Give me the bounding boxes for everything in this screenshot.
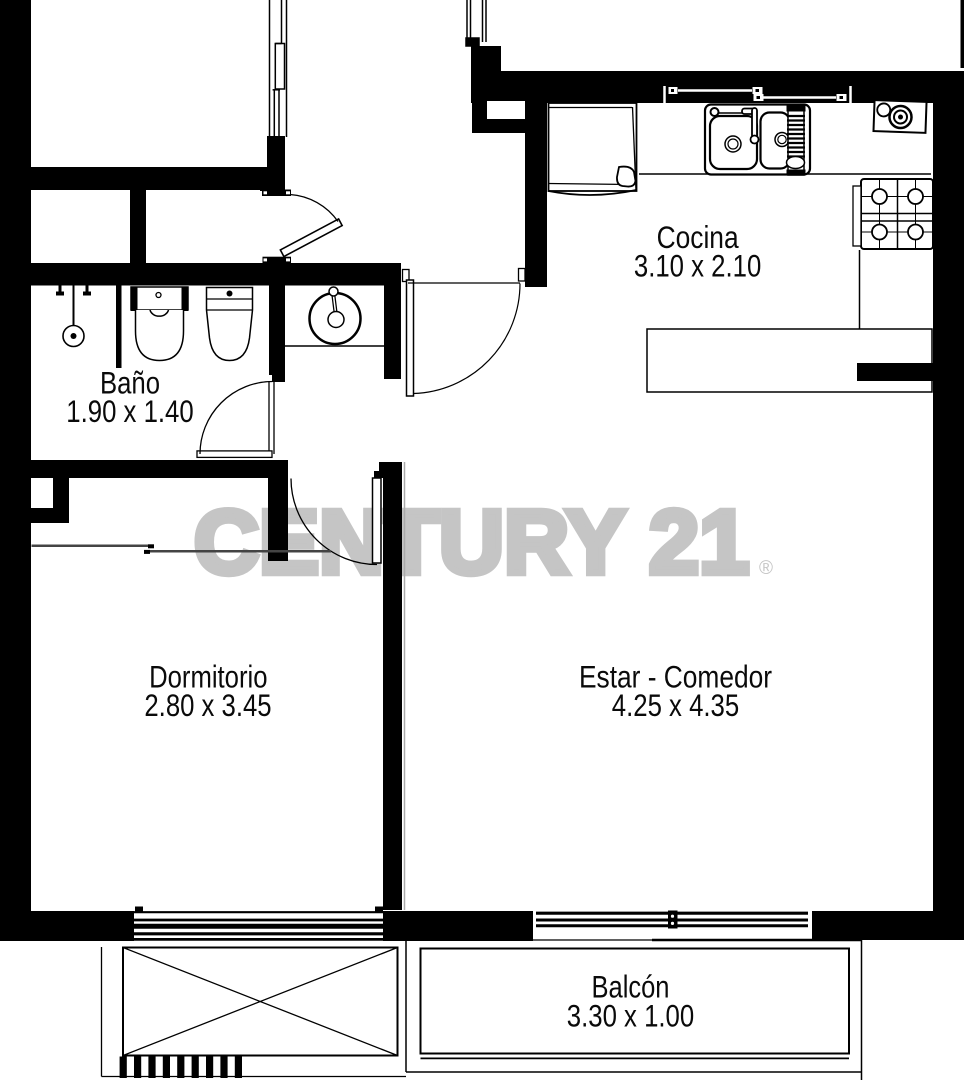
svg-text:3.10 x 2.10: 3.10 x 2.10 <box>634 249 761 284</box>
svg-text:4.25 x 4.35: 4.25 x 4.35 <box>612 688 739 723</box>
svg-text:3.30 x 1.00: 3.30 x 1.00 <box>567 999 694 1034</box>
svg-text:1.90 x 1.40: 1.90 x 1.40 <box>66 394 193 429</box>
svg-text:2.80 x 3.45: 2.80 x 3.45 <box>144 688 271 723</box>
svg-text:®: ® <box>759 558 773 579</box>
